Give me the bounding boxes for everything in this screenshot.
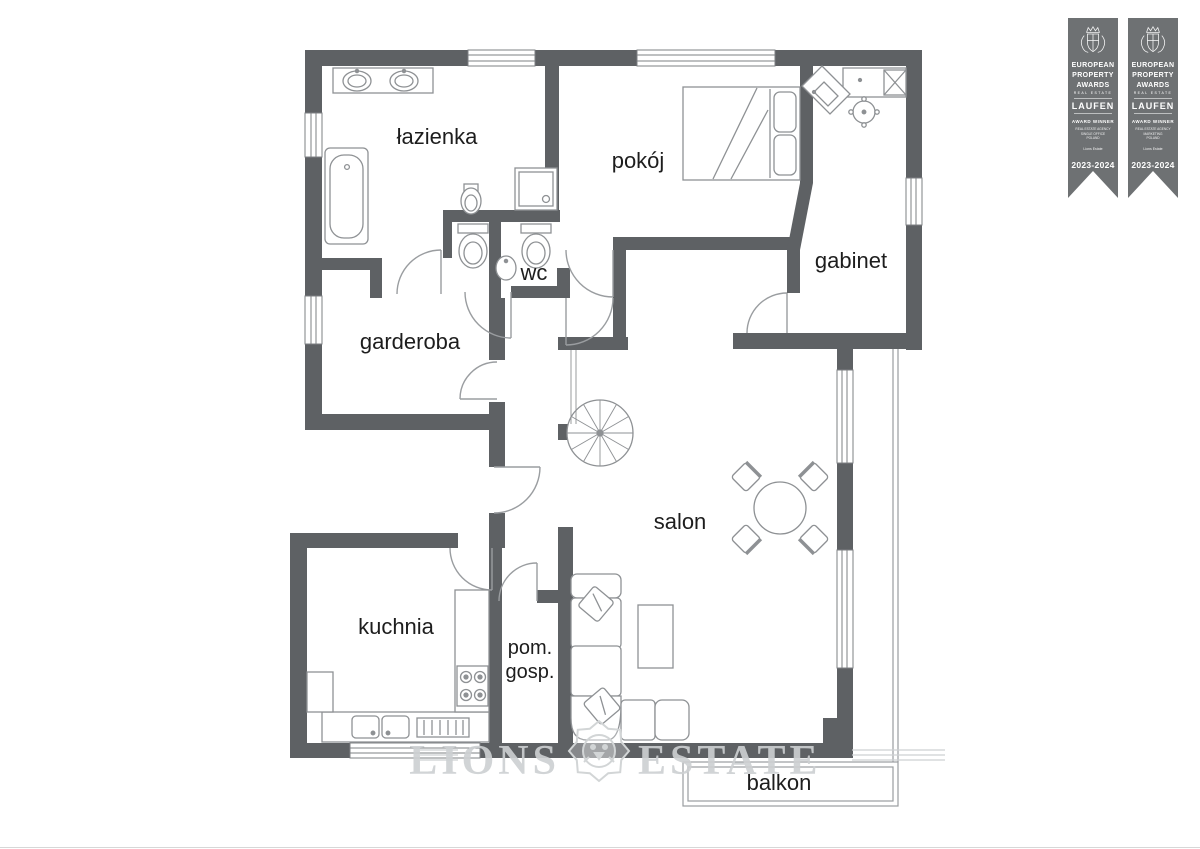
room-label-garderoba: garderoba [360, 329, 461, 354]
award-category-line3: POLAND [1135, 136, 1170, 141]
bathtub [325, 148, 368, 244]
lion-head-icon [569, 721, 629, 781]
vanity-counter [333, 68, 433, 93]
window-top-1 [468, 50, 535, 66]
award-ribbon-1: EUROPEAN PROPERTY AWARDS REAL ESTATE LAU… [1068, 18, 1118, 198]
spiral-stairs [567, 350, 633, 466]
door-entrance [494, 467, 540, 513]
award-category-line1: REAL ESTATE AGENCY [1075, 127, 1110, 132]
award-ribbon-2: EUROPEAN PROPERTY AWARDS REAL ESTATE LAU… [1128, 18, 1178, 198]
award-org-line1: EUROPEAN [1072, 62, 1115, 70]
award-years: 2023-2024 [1071, 160, 1114, 170]
wc-basin [496, 256, 516, 280]
room-label-gosp: gosp. [506, 661, 555, 683]
image-bottom-border [0, 847, 1200, 848]
room-label-pokoj: pokój [612, 148, 665, 173]
shower [515, 168, 557, 210]
desk-chair [849, 97, 879, 127]
toilet-1 [458, 224, 488, 268]
award-recipient: Lions Estate [1143, 147, 1162, 151]
room-label-kuchnia: kuchnia [358, 614, 435, 639]
award-org-line2: PROPERTY [1132, 72, 1174, 80]
door-pokoj [566, 250, 613, 297]
dining-table [754, 482, 806, 534]
window-salon-2 [837, 550, 853, 668]
bidet [461, 184, 481, 214]
room-label-gabinet: gabinet [815, 248, 887, 273]
award-sponsor: LAUFEN [1072, 101, 1115, 111]
award-recipient: Lions Estate [1083, 147, 1102, 151]
window-left-2 [305, 296, 322, 344]
award-org-sub: REAL ESTATE [1074, 91, 1112, 95]
award-org-line3: AWARDS [1076, 82, 1109, 90]
room-label-lazienka: łazienka [397, 124, 478, 149]
crest-icon [1137, 24, 1169, 60]
door-gabinet [747, 293, 787, 333]
award-org-line1: EUROPEAN [1132, 62, 1175, 70]
award-years: 2023-2024 [1131, 160, 1174, 170]
floor-plan-page: łazienka pokój gabinet garderoba wc salo… [0, 0, 1200, 849]
room-label-salon: salon [654, 509, 707, 534]
window-top-2 [637, 50, 775, 66]
floor-plan: łazienka pokój gabinet garderoba wc salo… [0, 0, 1200, 849]
award-winner: AWARD WINNER [1072, 119, 1114, 124]
award-sponsor: LAUFEN [1132, 101, 1175, 111]
award-category-line3: POLAND [1075, 136, 1110, 141]
award-winner: AWARD WINNER [1132, 119, 1174, 124]
crest-icon [1077, 24, 1109, 60]
coffee-table [638, 605, 673, 668]
window-left-1 [305, 113, 322, 157]
award-org-line2: PROPERTY [1072, 72, 1114, 80]
window-salon-1 [837, 370, 853, 463]
door-kitchen [450, 548, 492, 590]
bed [683, 87, 800, 180]
door-lazienka [397, 250, 441, 294]
award-category-line1: REAL ESTATE AGENCY [1135, 127, 1170, 132]
award-org-sub: REAL ESTATE [1134, 91, 1172, 95]
door-pom-gosp [499, 563, 537, 601]
award-org-line3: AWARDS [1136, 82, 1169, 90]
room-labels: łazienka pokój gabinet garderoba wc salo… [358, 124, 887, 795]
watermark-text-right: ESTATE [638, 738, 822, 784]
window-gabinet [906, 178, 922, 225]
room-label-pom: pom. [508, 637, 552, 659]
door-garderoba [460, 362, 497, 399]
stove [457, 666, 488, 706]
fixtures [307, 66, 906, 742]
room-label-wc: wc [520, 260, 548, 285]
watermark-text-left: LIONS [409, 738, 560, 784]
